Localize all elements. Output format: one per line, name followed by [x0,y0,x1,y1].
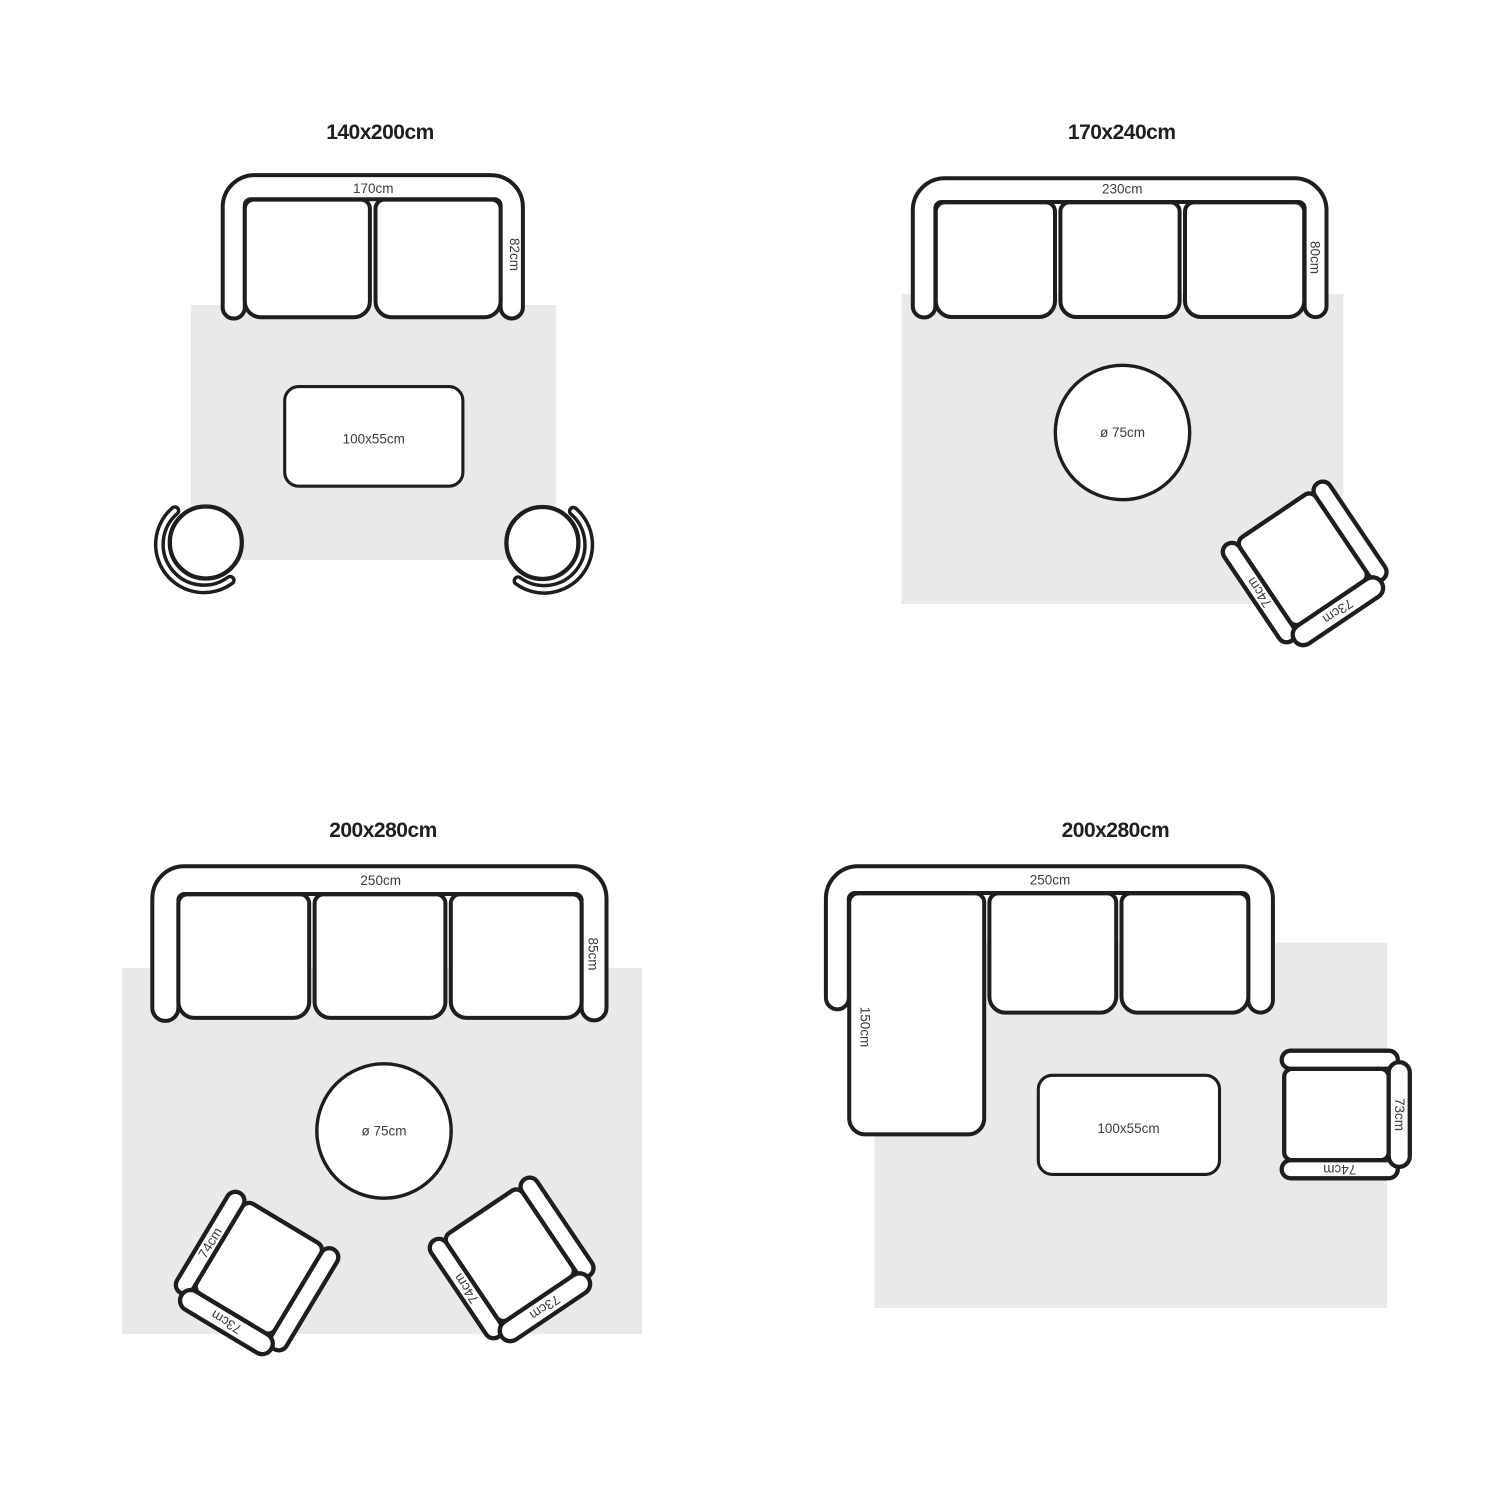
svg-text:250cm: 250cm [360,873,401,888]
svg-text:74cm: 74cm [1323,1162,1356,1177]
svg-text:ø 75cm: ø 75cm [1100,425,1145,440]
svg-text:170x240cm: 170x240cm [1068,121,1176,144]
svg-text:80cm: 80cm [1308,241,1323,274]
svg-text:100x55cm: 100x55cm [1097,1121,1159,1136]
svg-text:100x55cm: 100x55cm [343,432,405,447]
svg-text:200x280cm: 200x280cm [329,819,437,842]
svg-text:140x200cm: 140x200cm [326,121,434,144]
svg-text:73cm: 73cm [1392,1098,1407,1131]
svg-text:170cm: 170cm [353,181,394,196]
svg-text:250cm: 250cm [1030,873,1071,888]
svg-text:200x280cm: 200x280cm [1062,819,1170,842]
svg-text:85cm: 85cm [585,937,600,970]
svg-text:230cm: 230cm [1102,182,1143,197]
svg-text:150cm: 150cm [858,1007,873,1048]
svg-text:ø 75cm: ø 75cm [361,1124,406,1139]
svg-text:82cm: 82cm [507,238,522,271]
